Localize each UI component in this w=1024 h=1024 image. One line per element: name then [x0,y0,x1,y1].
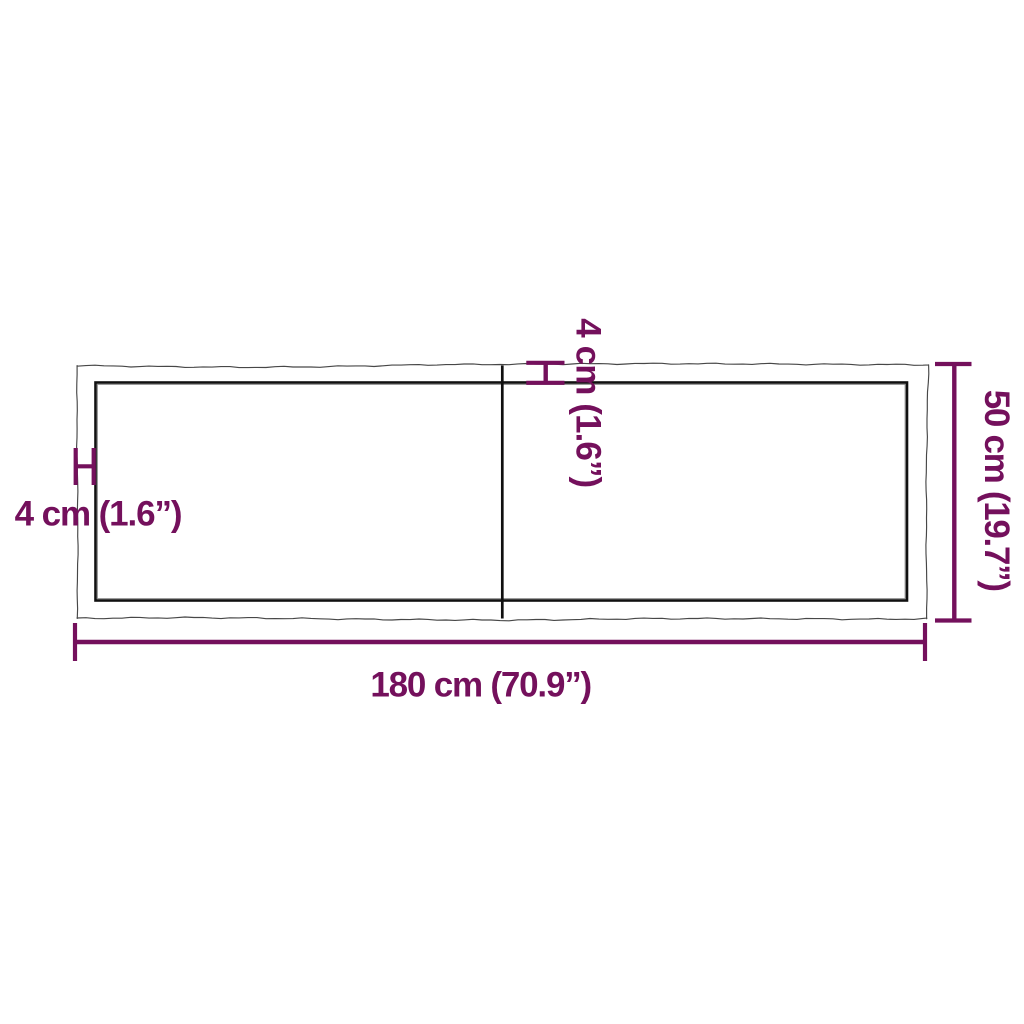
svg-text:50 cm (19.7”): 50 cm (19.7”) [977,390,1016,591]
svg-text:180 cm (70.9”): 180 cm (70.9”) [370,666,591,705]
svg-text:4 cm (1.6”): 4 cm (1.6”) [15,495,182,534]
svg-text:4 cm (1.6”): 4 cm (1.6”) [569,318,608,487]
